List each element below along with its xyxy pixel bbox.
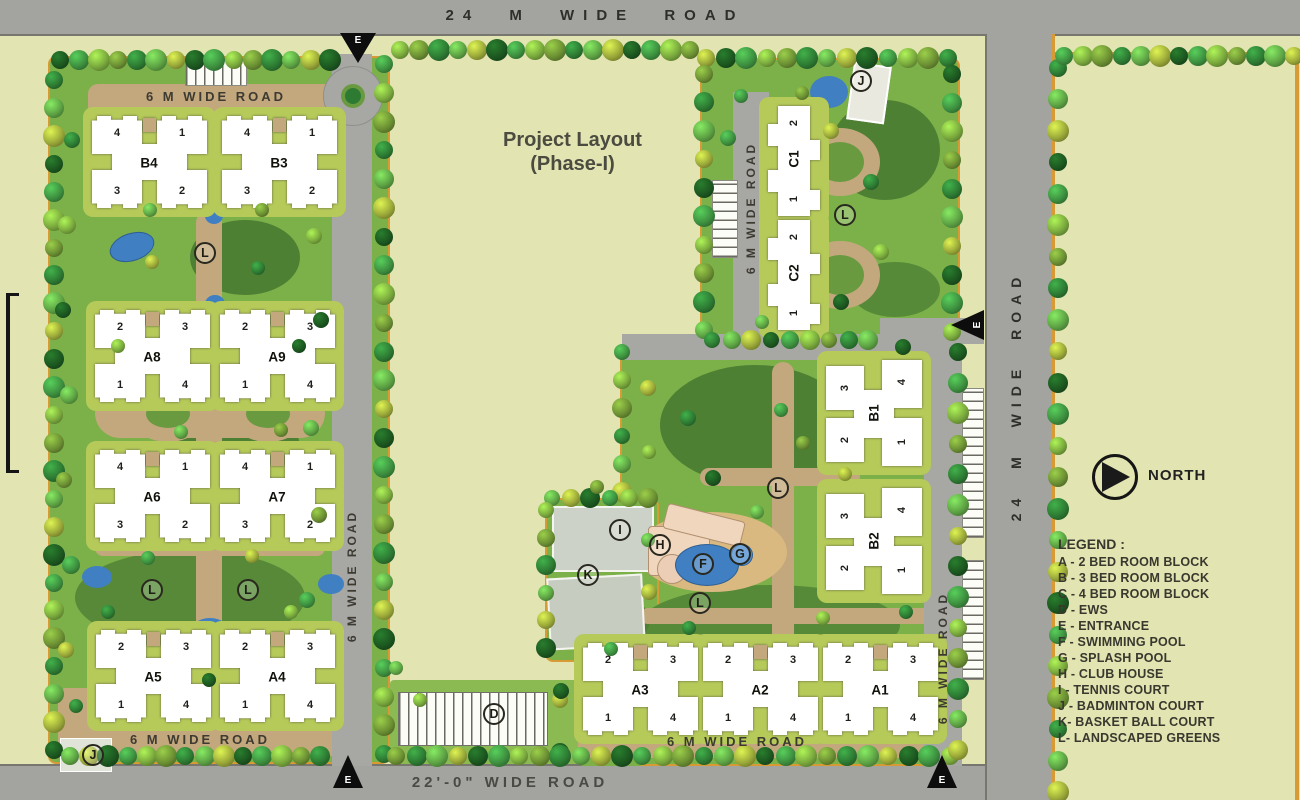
- marker-J: J: [850, 70, 872, 92]
- tree: [1228, 47, 1246, 65]
- tree: [284, 605, 298, 619]
- building-label: A6: [143, 490, 160, 505]
- tree: [840, 331, 858, 349]
- tree: [899, 746, 919, 766]
- building-label: A7: [268, 490, 285, 505]
- tree: [375, 141, 393, 159]
- tree: [468, 746, 488, 766]
- tree: [705, 470, 721, 486]
- north-label: NORTH: [1148, 467, 1206, 484]
- tree: [776, 746, 796, 766]
- tree: [750, 505, 764, 519]
- tree: [942, 93, 962, 113]
- tree: [525, 40, 545, 60]
- marker-letter: L: [696, 596, 704, 610]
- unit-number: 4: [790, 712, 796, 724]
- unit-number: 4: [114, 127, 120, 139]
- building-label: A4: [268, 670, 285, 685]
- tree: [43, 711, 65, 733]
- tree: [225, 51, 243, 69]
- unit-number: 2: [839, 565, 851, 571]
- unit-number: 2: [845, 654, 851, 666]
- tree: [1047, 309, 1069, 331]
- unit-number: 1: [309, 127, 315, 139]
- unit-number: 4: [242, 461, 248, 473]
- building-A4: 2314A4: [220, 630, 335, 722]
- legend: LEGEND : A - 2 BED ROOM BLOCKB - 3 BED R…: [1058, 536, 1300, 746]
- tree: [1049, 248, 1067, 266]
- tree: [949, 527, 967, 545]
- tree: [720, 130, 736, 146]
- tree: [1091, 45, 1113, 67]
- marker-L: L: [141, 579, 163, 601]
- unit-number: 3: [244, 185, 250, 197]
- tree: [311, 507, 327, 523]
- tree: [821, 332, 837, 348]
- marker-letter: L: [774, 481, 782, 495]
- unit-number: 1: [896, 567, 908, 573]
- unit-number: 3: [307, 321, 313, 333]
- tree: [641, 40, 661, 60]
- internal-road-label: 6 M WIDE ROAD: [744, 128, 758, 288]
- building-wing: [768, 124, 780, 146]
- tree: [373, 111, 395, 133]
- unit-number: 4: [307, 379, 313, 391]
- tree: [374, 169, 394, 189]
- project-title-line1: Project Layout: [455, 128, 690, 152]
- unit-number: 2: [788, 120, 800, 126]
- marker-K: K: [577, 564, 599, 586]
- tree: [375, 573, 393, 591]
- tree: [426, 745, 448, 767]
- marker-J: J: [82, 744, 104, 766]
- tree: [544, 39, 566, 61]
- tree: [1049, 342, 1067, 360]
- tree: [251, 261, 265, 275]
- tree: [255, 203, 269, 217]
- unit-number: 2: [307, 519, 313, 531]
- tree: [623, 41, 641, 59]
- building-wing: [754, 645, 767, 659]
- legend-item: B - 3 BED ROOM BLOCK: [1058, 570, 1300, 586]
- tree: [306, 228, 322, 244]
- building-wing: [271, 452, 284, 466]
- tree: [947, 678, 969, 700]
- tree: [833, 294, 849, 310]
- dimension-bracket: [6, 293, 20, 473]
- tree: [374, 600, 394, 620]
- tree: [1048, 373, 1068, 393]
- building-label: B3: [270, 156, 287, 171]
- building-wing: [147, 632, 160, 646]
- marker-letter: I: [618, 523, 621, 537]
- tree: [44, 433, 64, 453]
- unit-number: 4: [117, 461, 123, 473]
- tree: [795, 86, 809, 100]
- building-label: C1: [787, 150, 802, 167]
- tree: [1048, 184, 1068, 204]
- tree: [948, 740, 968, 760]
- legend-item: D - EWS: [1058, 602, 1300, 618]
- entrance-letter: E: [939, 775, 946, 786]
- tree: [553, 683, 569, 699]
- tree: [58, 642, 74, 658]
- tree: [800, 330, 820, 350]
- tree: [863, 174, 879, 190]
- tree: [488, 745, 510, 767]
- tree: [549, 745, 571, 767]
- internal-road-label: 6 M WIDE ROAD: [936, 573, 950, 743]
- tree: [44, 182, 64, 202]
- internal-road-label: 6 M WIDE ROAD: [116, 89, 316, 104]
- tree: [45, 406, 63, 424]
- entrance-letter: E: [355, 35, 362, 46]
- tree: [167, 51, 185, 69]
- internal-road-label: 6 M WIDE ROAD: [345, 491, 359, 661]
- building-wing: [143, 118, 156, 132]
- tree: [898, 48, 918, 68]
- tree: [614, 428, 630, 444]
- tree: [56, 472, 72, 488]
- unit-number: 1: [117, 379, 123, 391]
- legend-items: A - 2 BED ROOM BLOCKB - 3 BED ROOM BLOCK…: [1058, 554, 1300, 746]
- building-A7: 4132A7: [220, 450, 335, 542]
- tree: [917, 47, 939, 69]
- building-label: A2: [751, 683, 768, 698]
- legend-item: C - 4 BED ROOM BLOCK: [1058, 586, 1300, 602]
- tree: [1113, 47, 1131, 65]
- tree: [565, 41, 583, 59]
- tree: [374, 687, 394, 707]
- tree: [942, 265, 962, 285]
- legend-item: I - TENNIS COURT: [1058, 682, 1300, 698]
- tree: [58, 216, 76, 234]
- tree: [583, 40, 603, 60]
- tree: [413, 693, 427, 707]
- unit-number: 4: [244, 127, 250, 139]
- building-A8: 2314A8: [95, 310, 210, 402]
- tree: [1049, 153, 1067, 171]
- tree: [375, 228, 393, 246]
- marker-letter: L: [841, 208, 849, 222]
- building-wing: [810, 140, 820, 160]
- tree: [693, 120, 715, 142]
- building-wing: [810, 304, 820, 324]
- legend-item: E - ENTRANCE: [1058, 618, 1300, 634]
- legend-item: G - SPLASH POOL: [1058, 650, 1300, 666]
- tree: [572, 747, 590, 765]
- building-label: C2: [787, 264, 802, 281]
- tree: [174, 425, 188, 439]
- unit-number: 2: [242, 321, 248, 333]
- tree: [537, 529, 555, 547]
- tree: [818, 747, 836, 765]
- tree: [1206, 45, 1228, 67]
- marker-F: F: [692, 553, 714, 575]
- building-A5: 2314A5: [96, 630, 211, 722]
- tree: [796, 47, 818, 69]
- tree: [1048, 278, 1068, 298]
- unit-number: 4: [896, 507, 908, 513]
- tree: [838, 467, 852, 481]
- tree: [60, 386, 78, 404]
- tree: [777, 48, 797, 68]
- tree: [467, 40, 487, 60]
- unit-number: 2: [309, 185, 315, 197]
- tree: [948, 648, 968, 668]
- tree: [942, 179, 962, 199]
- building-wing: [874, 645, 887, 659]
- tree: [530, 746, 550, 766]
- internal-road-label: 6 M WIDE ROAD: [100, 732, 300, 747]
- building-wing: [768, 170, 780, 192]
- tree: [88, 49, 110, 71]
- tree: [62, 556, 80, 574]
- building-B1: 3421B1: [826, 360, 922, 466]
- unit-number: 1: [307, 461, 313, 473]
- marker-D: D: [483, 703, 505, 725]
- building-label: A9: [268, 350, 285, 365]
- tree: [143, 203, 157, 217]
- tree: [127, 50, 147, 70]
- tree: [653, 746, 673, 766]
- unit-number: 4: [183, 699, 189, 711]
- unit-number: 3: [182, 321, 188, 333]
- tree: [64, 132, 80, 148]
- tree: [389, 661, 403, 675]
- tree: [373, 628, 395, 650]
- tree: [69, 699, 83, 713]
- tree: [375, 486, 393, 504]
- tree: [948, 373, 968, 393]
- marker-letter: H: [655, 538, 664, 552]
- tree: [614, 344, 630, 360]
- entrance-letter: E: [972, 322, 983, 329]
- unit-number: 1: [605, 712, 611, 724]
- tree: [873, 244, 889, 260]
- legend-item: K- BASKET BALL COURT: [1058, 714, 1300, 730]
- building-wing: [810, 254, 820, 274]
- unit-number: 3: [839, 385, 851, 391]
- building-wing: [146, 452, 159, 466]
- tree: [45, 574, 63, 592]
- marker-letter: F: [699, 557, 707, 571]
- tree: [538, 502, 554, 518]
- unit-number: 1: [725, 712, 731, 724]
- marker-letter: D: [489, 707, 498, 721]
- tree: [1073, 46, 1093, 66]
- building-wing: [768, 238, 780, 260]
- tree: [44, 517, 64, 537]
- roundabout-tree: [345, 88, 361, 104]
- tree: [319, 49, 341, 71]
- legend-item: A - 2 BED ROOM BLOCK: [1058, 554, 1300, 570]
- marker-L: L: [767, 477, 789, 499]
- tree: [763, 332, 779, 348]
- tree: [823, 123, 839, 139]
- unit-number: 3: [839, 513, 851, 519]
- road-right-label: 24 M WIDE ROAD: [1008, 226, 1024, 566]
- tree: [602, 39, 624, 61]
- tree: [1264, 45, 1286, 67]
- north-arrow-triangle: [1102, 462, 1130, 492]
- building-C1: 21C1: [768, 106, 820, 216]
- tree: [45, 490, 63, 508]
- building-label: A3: [631, 683, 648, 698]
- tree: [1048, 751, 1068, 771]
- marker-H: H: [649, 534, 671, 556]
- unit-number: 4: [910, 712, 916, 724]
- building-label: A8: [143, 350, 160, 365]
- building-wing: [271, 312, 284, 326]
- tree: [638, 488, 658, 508]
- tree: [109, 51, 127, 69]
- marker-L: L: [237, 579, 259, 601]
- tree: [375, 400, 393, 418]
- badminton-court: [846, 62, 892, 125]
- unit-number: 3: [307, 641, 313, 653]
- pond: [82, 566, 112, 588]
- building-B2: 3421B2: [826, 488, 922, 594]
- tree: [195, 746, 215, 766]
- marker-I: I: [609, 519, 631, 541]
- tree: [292, 747, 310, 765]
- building-A1: 2314A1: [823, 643, 938, 735]
- legend-item: H - CLUB HOUSE: [1058, 666, 1300, 682]
- tree: [373, 456, 395, 478]
- tree: [375, 314, 393, 332]
- tree: [734, 89, 748, 103]
- unit-number: 1: [788, 310, 800, 316]
- tree: [536, 638, 556, 658]
- marker-letter: J: [858, 74, 865, 88]
- tree: [949, 435, 967, 453]
- tree: [1049, 437, 1067, 455]
- building-label: A5: [144, 670, 161, 685]
- tree: [943, 151, 961, 169]
- tree: [292, 339, 306, 353]
- tree: [373, 369, 395, 391]
- north-arrow-icon: [1092, 454, 1138, 500]
- bracket-tick: [10, 293, 19, 296]
- building-A6: 4132A6: [95, 450, 210, 542]
- tree: [695, 236, 713, 254]
- tree: [185, 50, 205, 70]
- tree: [758, 49, 776, 67]
- unit-number: 1: [788, 196, 800, 202]
- building-label: B1: [867, 404, 882, 421]
- tree: [857, 745, 879, 767]
- tree: [704, 332, 720, 348]
- unit-number: 1: [179, 127, 185, 139]
- tree: [816, 611, 830, 625]
- building-wing: [810, 190, 820, 210]
- tree: [612, 398, 632, 418]
- tree: [1170, 47, 1188, 65]
- project-title-line2: (Phase-I): [455, 152, 690, 176]
- marker-letter: K: [583, 568, 592, 582]
- tree: [310, 746, 330, 766]
- tree: [947, 586, 969, 608]
- unit-number: 3: [670, 654, 676, 666]
- tree: [943, 237, 961, 255]
- legend-item: L- LANDSCAPED GREENS: [1058, 730, 1300, 746]
- tree: [774, 403, 788, 417]
- tree: [213, 745, 235, 767]
- marker-G: G: [729, 543, 751, 565]
- building-A3: 2314A3: [583, 643, 698, 735]
- unit-number: 4: [182, 379, 188, 391]
- tree: [374, 83, 394, 103]
- tree: [695, 65, 713, 83]
- tree: [694, 263, 714, 283]
- marker-letter: L: [201, 246, 209, 260]
- unit-number: 2: [182, 519, 188, 531]
- road-top-label: 24 M WIDE ROAD: [330, 7, 860, 24]
- building-B3: 4132B3: [222, 116, 337, 208]
- tree: [604, 642, 618, 656]
- marker-letter: L: [244, 583, 252, 597]
- tree: [449, 41, 467, 59]
- unit-number: 3: [183, 641, 189, 653]
- tree: [1048, 467, 1068, 487]
- tree: [374, 514, 394, 534]
- tree: [949, 619, 967, 637]
- tree: [682, 621, 696, 635]
- tree: [818, 49, 836, 67]
- tree: [374, 255, 394, 275]
- unit-number: 1: [242, 699, 248, 711]
- building-wing: [768, 284, 780, 306]
- site-plan: 4132B44132B32314A82314A94132A64132A72314…: [0, 0, 1300, 800]
- tree: [119, 747, 137, 765]
- tree: [538, 585, 554, 601]
- internal-road-label: 6 M WIDE ROAD: [637, 734, 837, 749]
- unit-number: 1: [118, 699, 124, 711]
- marker-letter: J: [90, 748, 97, 762]
- tree: [303, 420, 319, 436]
- unit-number: 4: [670, 712, 676, 724]
- unit-number: 3: [242, 519, 248, 531]
- tree: [373, 542, 395, 564]
- tree: [409, 40, 429, 60]
- marker-L: L: [194, 242, 216, 264]
- building-wing: [271, 632, 284, 646]
- pond: [318, 574, 344, 594]
- tree: [947, 494, 969, 516]
- tree: [44, 98, 64, 118]
- marker-letter: G: [735, 547, 745, 561]
- tree: [1048, 89, 1068, 109]
- tree: [949, 710, 967, 728]
- tree: [245, 549, 259, 563]
- tree: [387, 747, 405, 765]
- tree: [1047, 120, 1069, 142]
- unit-number: 2: [725, 654, 731, 666]
- tree: [796, 436, 810, 450]
- unit-number: 3: [117, 519, 123, 531]
- tree: [375, 55, 393, 73]
- tree: [858, 330, 878, 350]
- tennis-court: [552, 506, 654, 572]
- tree: [141, 551, 155, 565]
- tree: [613, 371, 631, 389]
- tree: [680, 410, 696, 426]
- tree: [879, 49, 897, 67]
- tree: [1149, 45, 1171, 67]
- unit-number: 3: [790, 654, 796, 666]
- tree: [45, 239, 63, 257]
